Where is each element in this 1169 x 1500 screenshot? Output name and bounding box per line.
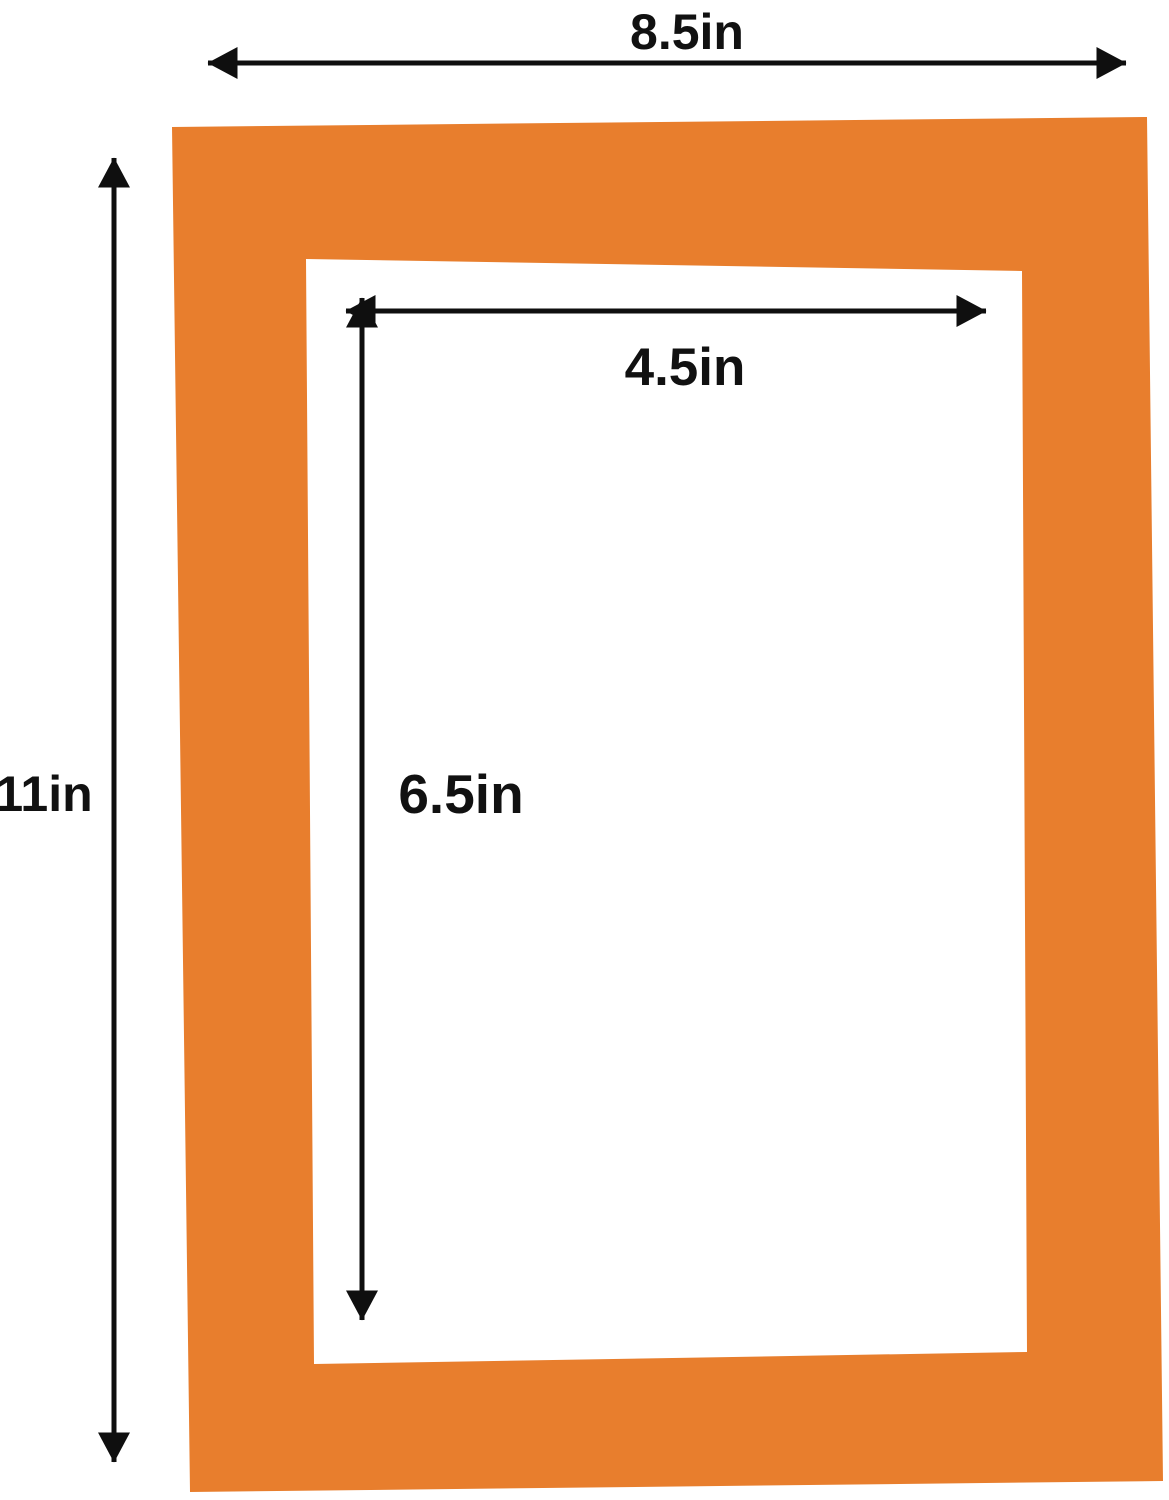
opening-width-label: 4.5in [625,338,746,397]
opening-height-label: 6.5in [398,763,523,825]
diagram-svg: 8.5in 11in 4.5in 6.5in [0,0,1169,1500]
outer-width-label: 8.5in [630,4,744,60]
mat-dimension-diagram: 8.5in 11in 4.5in 6.5in [0,0,1169,1500]
outer-height-label: 11in [0,766,93,822]
mat-shape [172,117,1163,1492]
